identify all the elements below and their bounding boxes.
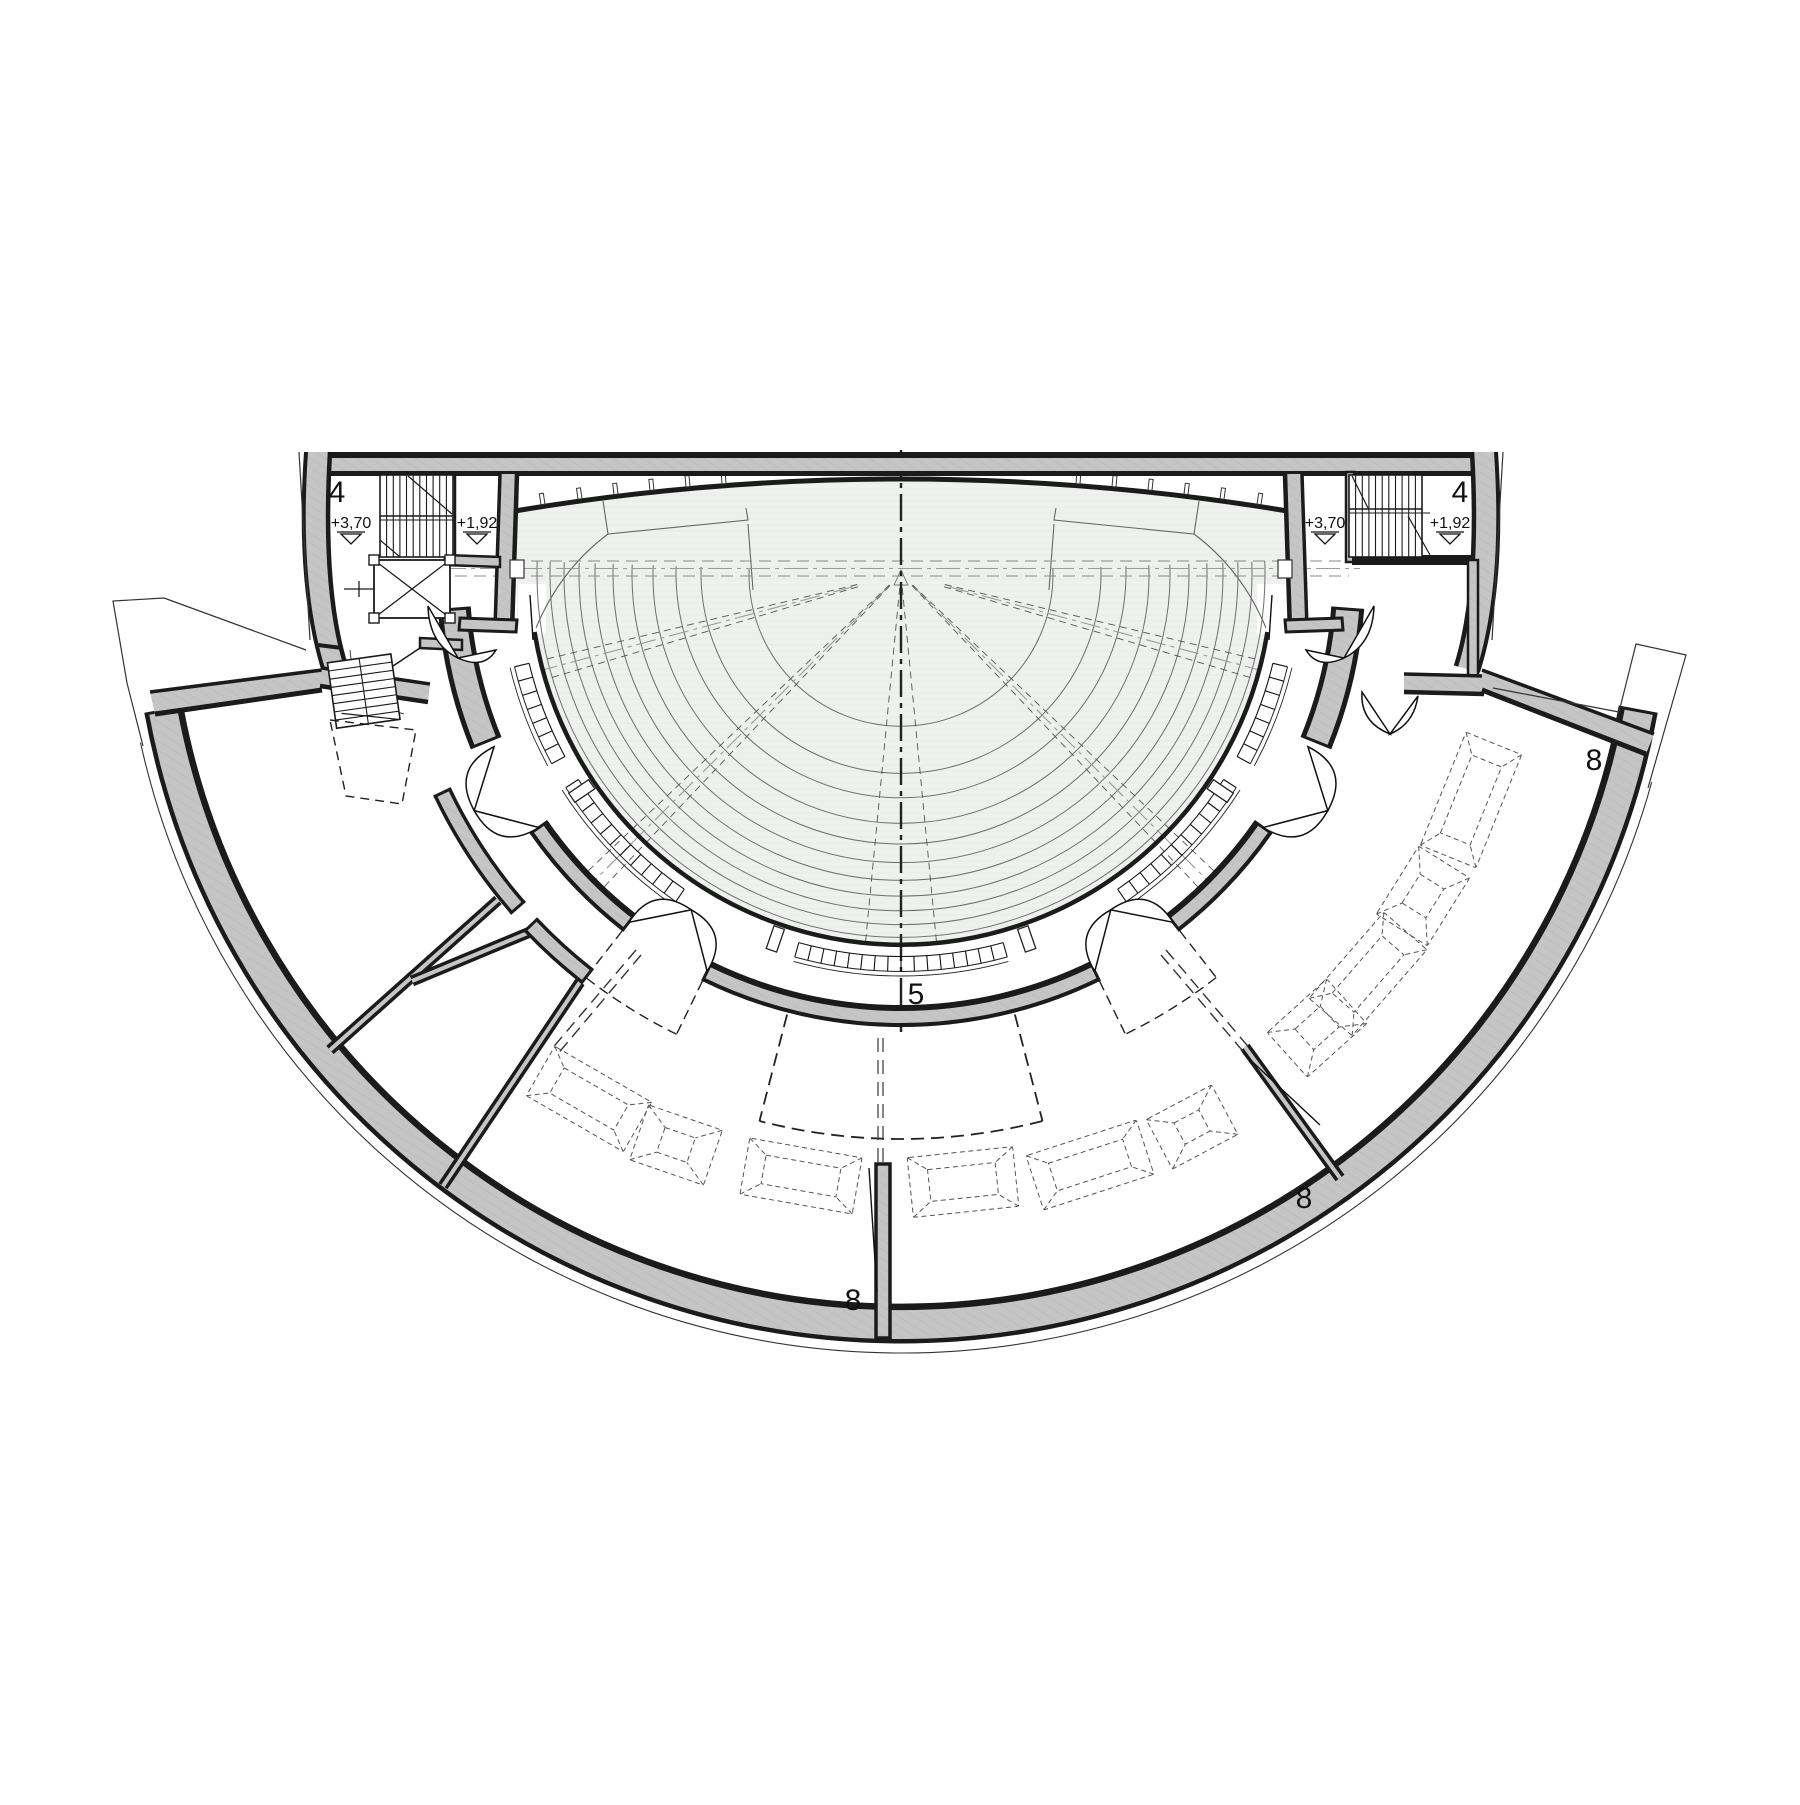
svg-text:8: 8	[845, 1284, 862, 1317]
svg-text:4: 4	[1452, 476, 1469, 509]
svg-text:+1,92: +1,92	[457, 515, 498, 532]
svg-text:4: 4	[329, 476, 346, 509]
svg-text:8: 8	[1586, 744, 1603, 777]
svg-text:5: 5	[908, 978, 925, 1011]
svg-text:+1,92: +1,92	[1430, 515, 1471, 532]
svg-text:+3,70: +3,70	[331, 515, 372, 532]
svg-text:+3,70: +3,70	[1305, 515, 1346, 532]
svg-text:8: 8	[1296, 1182, 1313, 1215]
